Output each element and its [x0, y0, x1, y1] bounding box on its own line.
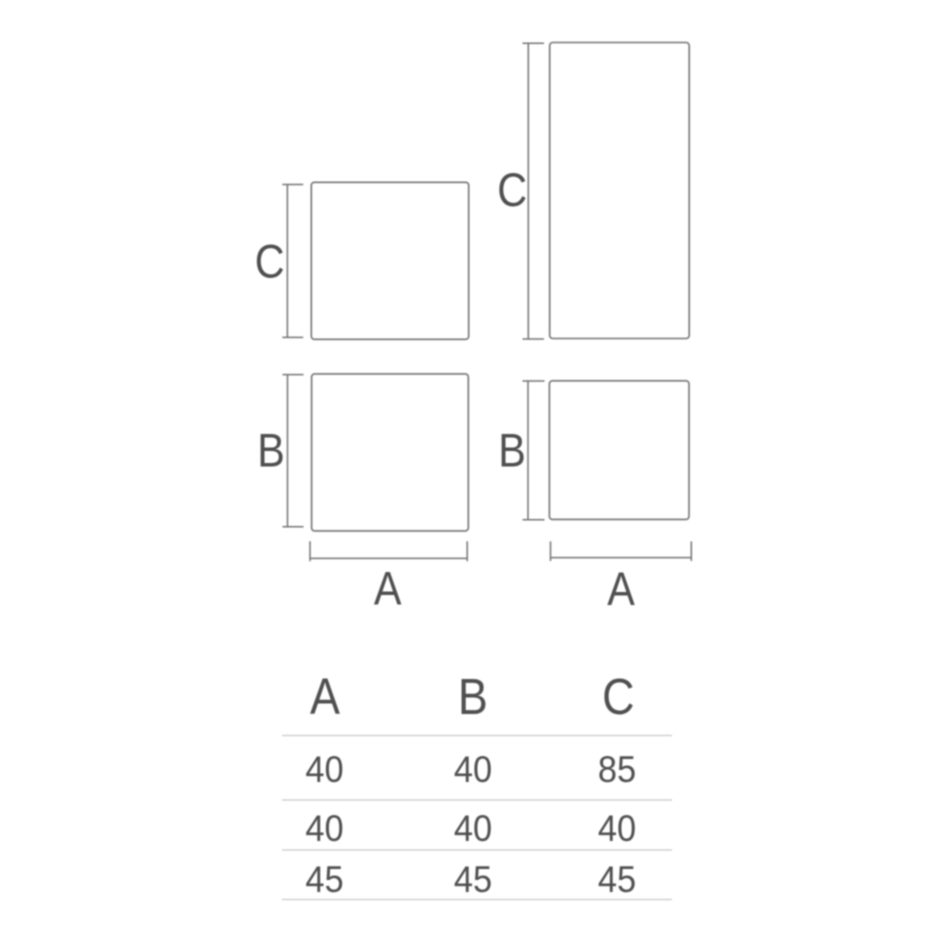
svg-text:A: A: [607, 564, 635, 616]
svg-text:40: 40: [305, 808, 343, 849]
svg-text:40: 40: [454, 808, 492, 849]
svg-text:40: 40: [598, 808, 636, 849]
svg-text:45: 45: [598, 859, 636, 900]
svg-text:B: B: [458, 669, 488, 725]
svg-text:45: 45: [305, 859, 343, 900]
svg-text:A: A: [310, 669, 340, 725]
svg-text:40: 40: [454, 749, 492, 790]
svg-text:C: C: [497, 165, 527, 217]
svg-text:C: C: [255, 236, 285, 288]
svg-text:C: C: [602, 669, 634, 725]
svg-text:40: 40: [305, 749, 343, 790]
svg-text:85: 85: [598, 749, 636, 790]
svg-text:B: B: [498, 425, 526, 477]
svg-text:B: B: [257, 425, 285, 477]
svg-text:A: A: [374, 563, 402, 615]
svg-text:45: 45: [454, 859, 492, 900]
